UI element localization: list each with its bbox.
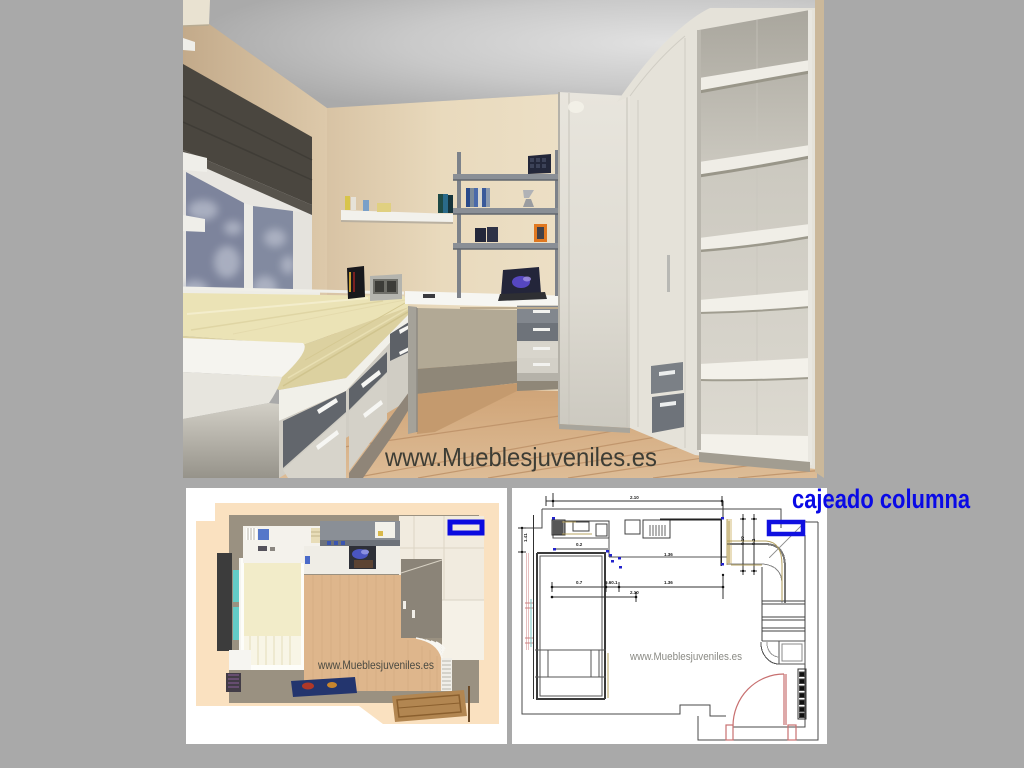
svg-text:1.36: 1.36 xyxy=(664,580,673,585)
svg-text:www.Mueblesjuveniles.es: www.Mueblesjuveniles.es xyxy=(384,442,657,472)
svg-text:1.41: 1.41 xyxy=(523,533,528,542)
svg-text:2.10: 2.10 xyxy=(630,495,639,500)
svg-text:0.7: 0.7 xyxy=(576,580,583,585)
svg-text:0.2: 0.2 xyxy=(751,538,756,545)
svg-text:www.Mueblesjuveniles.es: www.Mueblesjuveniles.es xyxy=(629,651,742,663)
svg-text:www.Mueblesjuveniles.es: www.Mueblesjuveniles.es xyxy=(317,658,434,672)
svg-text:2.10: 2.10 xyxy=(630,590,639,595)
svg-text:0.10: 0.10 xyxy=(740,536,745,545)
svg-text:1.36: 1.36 xyxy=(664,552,673,557)
svg-text:0.60.1: 0.60.1 xyxy=(605,580,618,585)
svg-text:0.2: 0.2 xyxy=(576,542,583,547)
